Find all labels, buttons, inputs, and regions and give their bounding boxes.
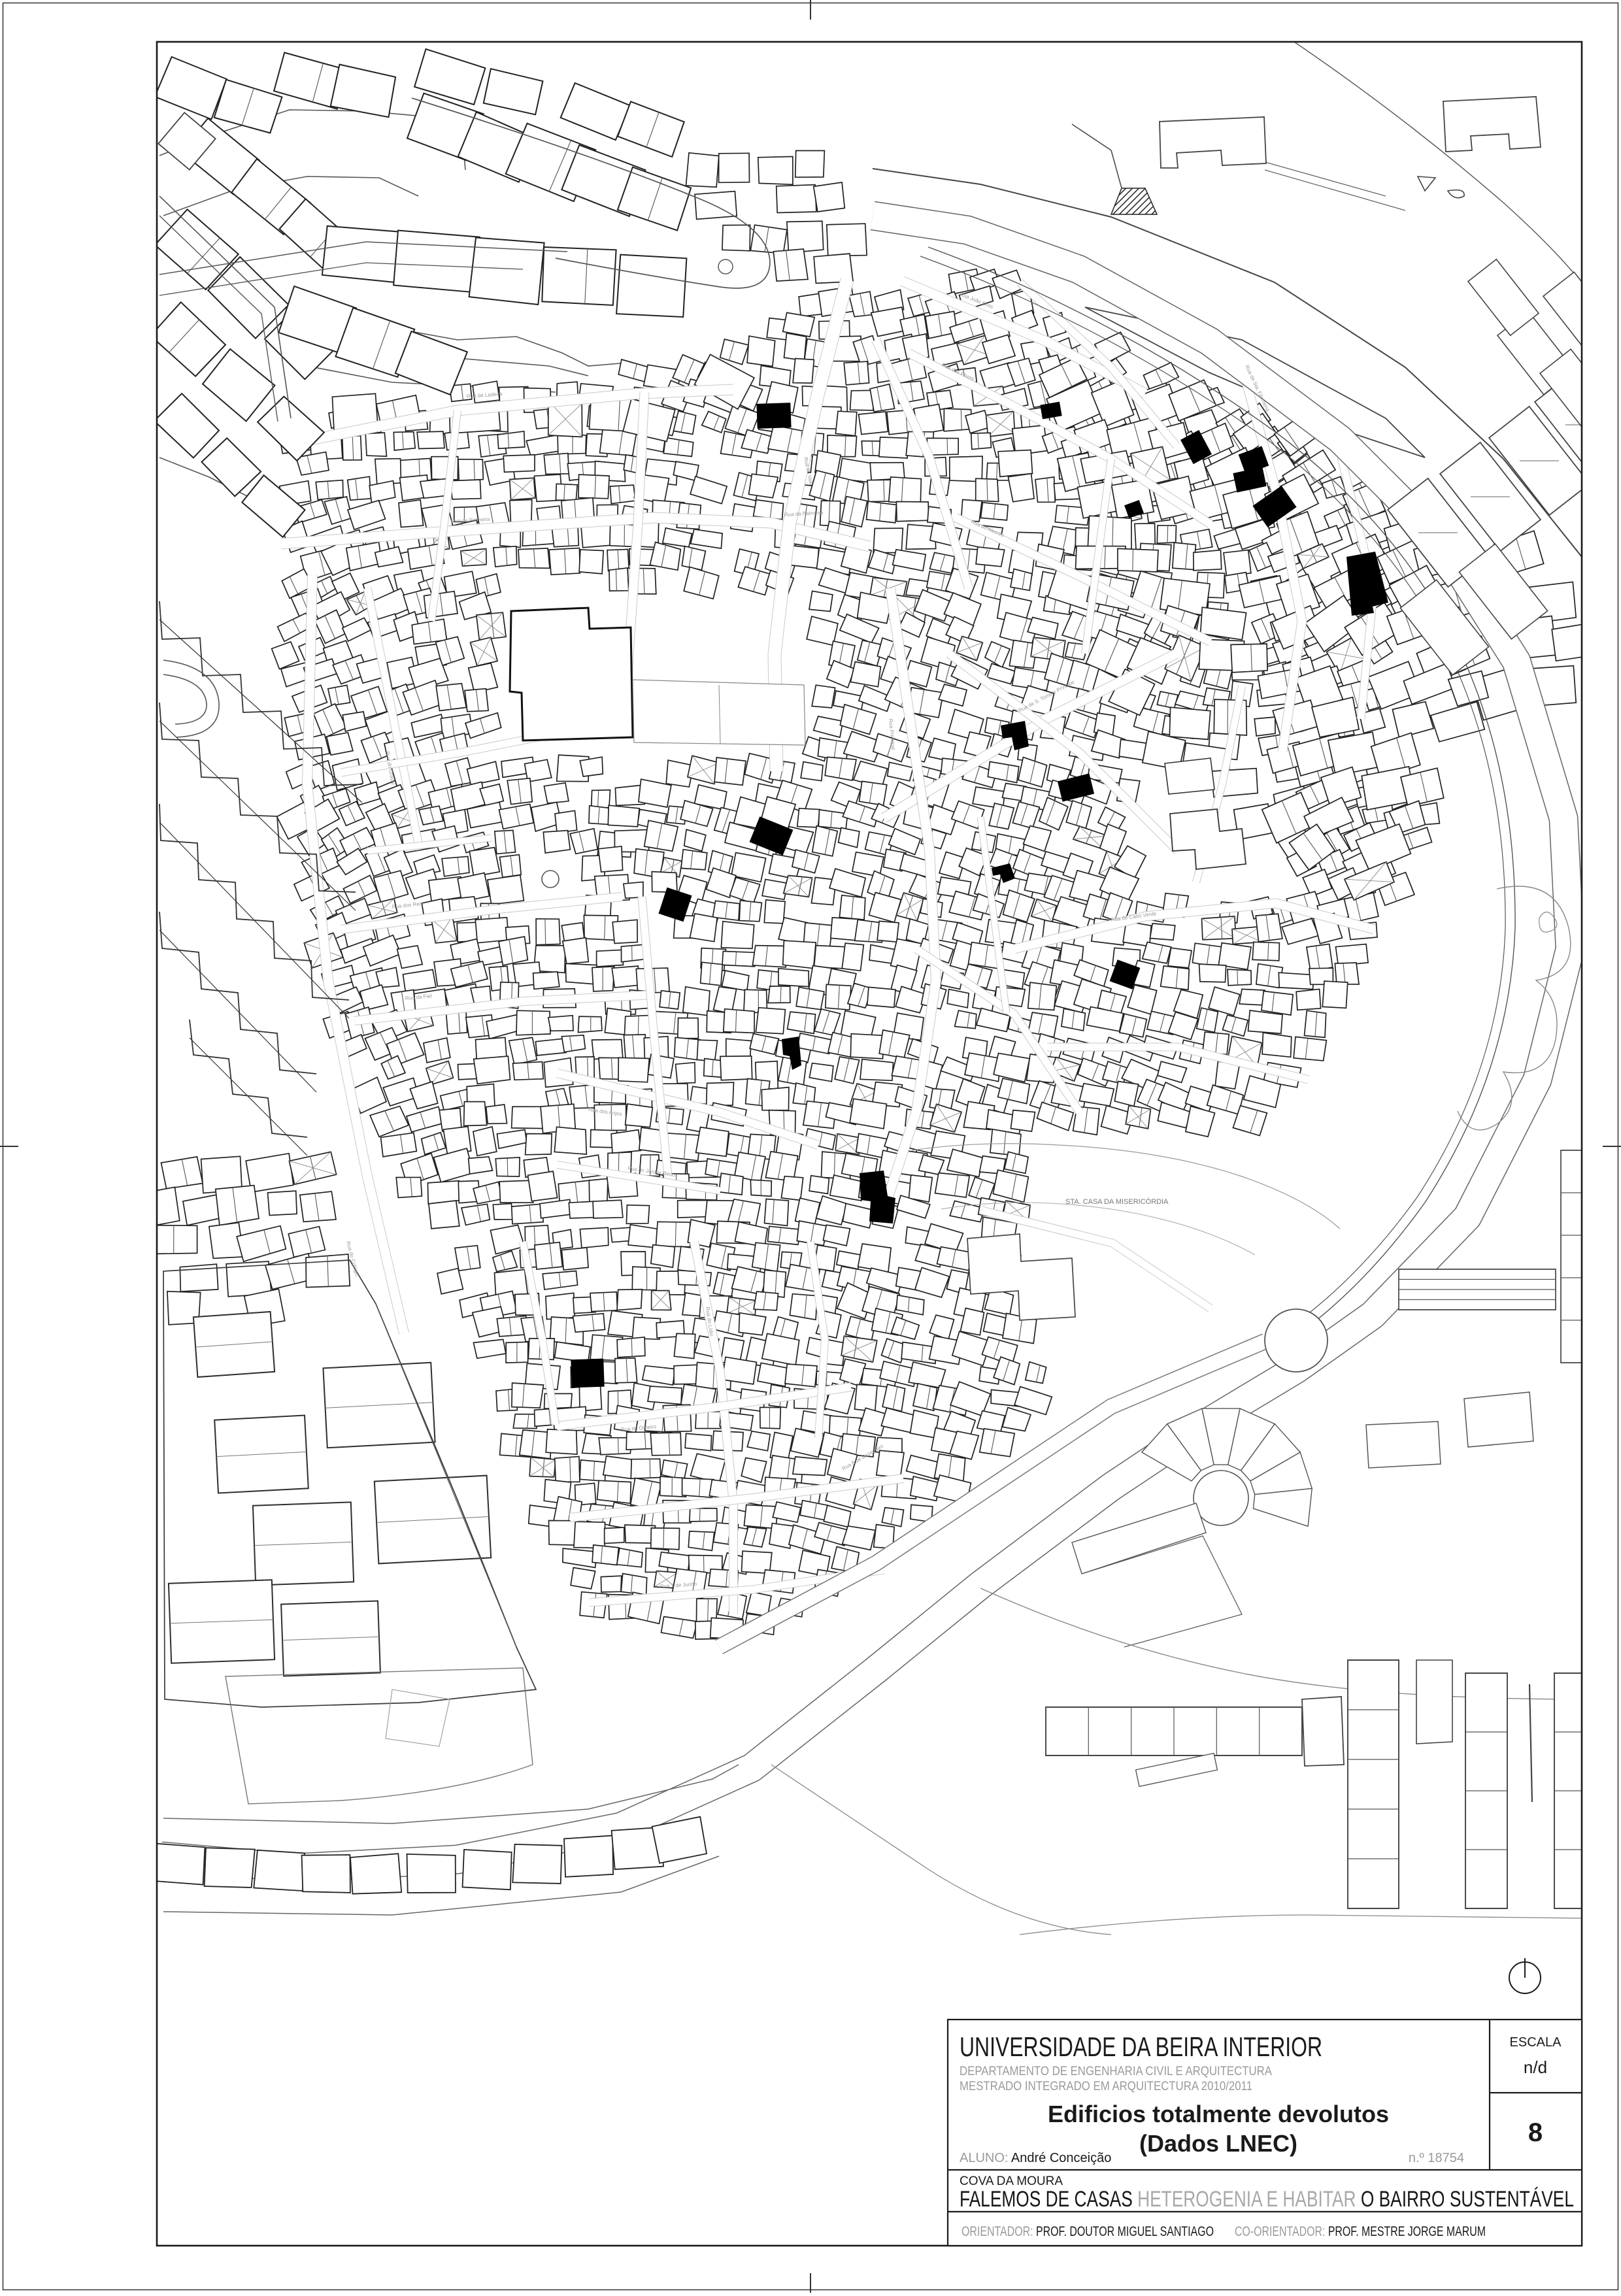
svg-text:DEPARTAMENTO DE ENGENHARIA CIV: DEPARTAMENTO DE ENGENHARIA CIVIL E ARQUI… <box>960 2065 1272 2078</box>
svg-text:STA. CASA DA MISERICÓRDIA: STA. CASA DA MISERICÓRDIA <box>1065 1197 1169 1206</box>
svg-text:CO-ORIENTADOR: PROF. MESTRE JO: CO-ORIENTADOR: PROF. MESTRE JORGE MARUM <box>1235 2224 1486 2239</box>
svg-text:FALEMOS DE CASAS HETEROGENIA E: FALEMOS DE CASAS HETEROGENIA E HABITAR O… <box>960 2187 1574 2212</box>
svg-text:ORIENTADOR: PROF. DOUTOR MIGUE: ORIENTADOR: PROF. DOUTOR MIGUEL SANTIAGO <box>961 2224 1214 2239</box>
svg-text:ALUNO: André Conceição: ALUNO: André Conceição <box>960 2151 1111 2165</box>
svg-text:COVA DA MOURA: COVA DA MOURA <box>960 2174 1063 2188</box>
svg-text:Edificios totalmente devolutos: Edificios totalmente devolutos <box>1048 2101 1389 2127</box>
svg-text:UNIVERSIDADE DA BEIRA INTERIOR: UNIVERSIDADE DA BEIRA INTERIOR <box>960 2031 1322 2062</box>
svg-text:(Dados LNEC): (Dados LNEC) <box>1139 2130 1297 2157</box>
svg-text:8: 8 <box>1528 2118 1543 2147</box>
svg-text:n/d: n/d <box>1524 2057 1547 2077</box>
svg-text:ESCALA: ESCALA <box>1510 2035 1562 2050</box>
svg-text:MESTRADO INTEGRADO EM ARQUITEC: MESTRADO INTEGRADO EM ARQUITECTURA 2010/… <box>960 2080 1252 2093</box>
svg-text:n.º 18754: n.º 18754 <box>1409 2151 1464 2165</box>
